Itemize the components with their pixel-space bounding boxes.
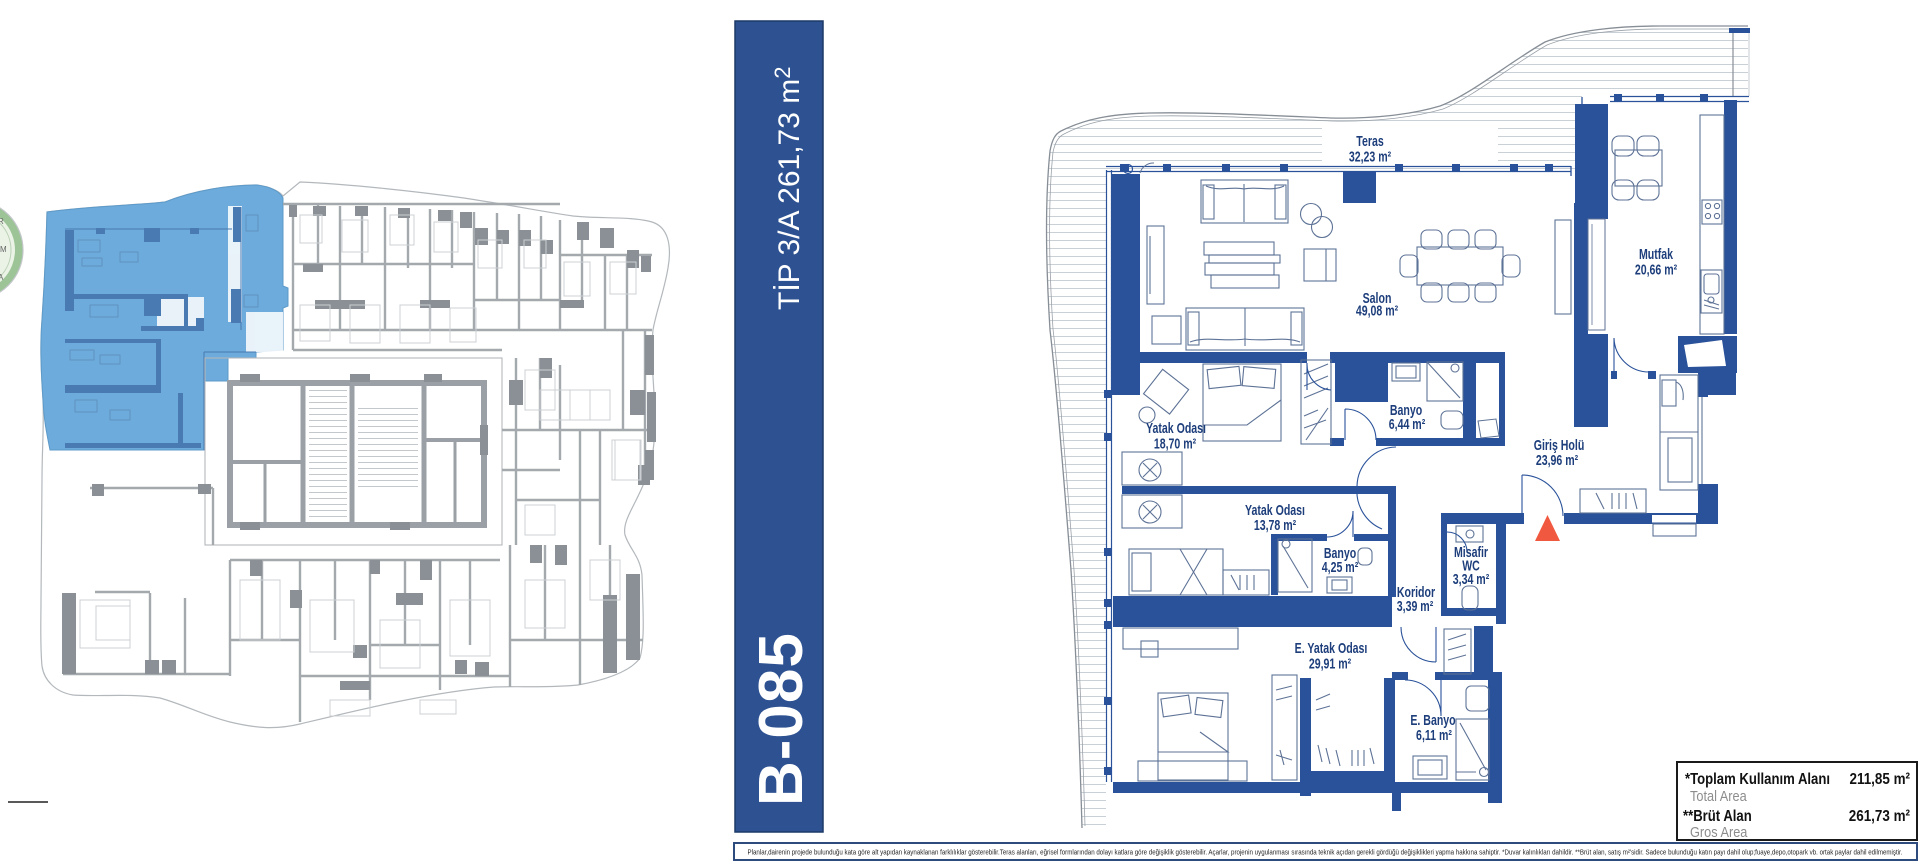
svg-text:261,73 m²: 261,73 m² xyxy=(1849,808,1910,825)
svg-text:*Toplam Kullanım Alanı: *Toplam Kullanım Alanı xyxy=(1685,771,1830,788)
svg-text:M: M xyxy=(0,245,7,254)
svg-text:B-085: B-085 xyxy=(747,632,816,806)
svg-text:20,66 m²: 20,66 m² xyxy=(1635,262,1677,278)
svg-text:Mutfak: Mutfak xyxy=(1639,246,1674,262)
svg-text:Gros Area: Gros Area xyxy=(1690,824,1748,840)
svg-text:4,25 m²: 4,25 m² xyxy=(1322,559,1358,575)
svg-text:29,91 m²: 29,91 m² xyxy=(1309,656,1351,672)
svg-text:**Brüt Alan: **Brüt Alan xyxy=(1683,808,1752,825)
svg-text:TİP 3/A 261,73 m2: TİP 3/A 261,73 m2 xyxy=(770,66,806,310)
svg-text:Teras: Teras xyxy=(1356,133,1383,149)
svg-text:32,23 m²: 32,23 m² xyxy=(1349,149,1391,165)
svg-text:Total Area: Total Area xyxy=(1690,788,1747,804)
svg-text:6,11 m²: 6,11 m² xyxy=(1416,727,1452,743)
svg-text:6,44 m²: 6,44 m² xyxy=(1389,416,1425,432)
svg-text:Yatak Odası: Yatak Odası xyxy=(1245,502,1305,518)
svg-text:3,39 m²: 3,39 m² xyxy=(1397,598,1433,614)
svg-text:3,34 m²: 3,34 m² xyxy=(1453,571,1489,587)
svg-text:Giriş Holü: Giriş Holü xyxy=(1534,437,1585,453)
svg-text:211,85 m²: 211,85 m² xyxy=(1850,771,1911,788)
svg-text:Planlar,dairenin projede bulun: Planlar,dairenin projede bulunduğu kata … xyxy=(748,848,1903,857)
svg-text:E. Banyo: E. Banyo xyxy=(1410,712,1455,728)
svg-text:R: R xyxy=(0,217,4,226)
svg-text:E. Yatak Odası: E. Yatak Odası xyxy=(1295,640,1368,656)
svg-text:23,96 m²: 23,96 m² xyxy=(1536,452,1578,468)
svg-text:13,78 m²: 13,78 m² xyxy=(1254,517,1296,533)
svg-text:Yatak Odası: Yatak Odası xyxy=(1146,420,1206,436)
svg-text:18,70 m²: 18,70 m² xyxy=(1154,436,1196,452)
svg-text:49,08 m²: 49,08 m² xyxy=(1356,303,1398,319)
